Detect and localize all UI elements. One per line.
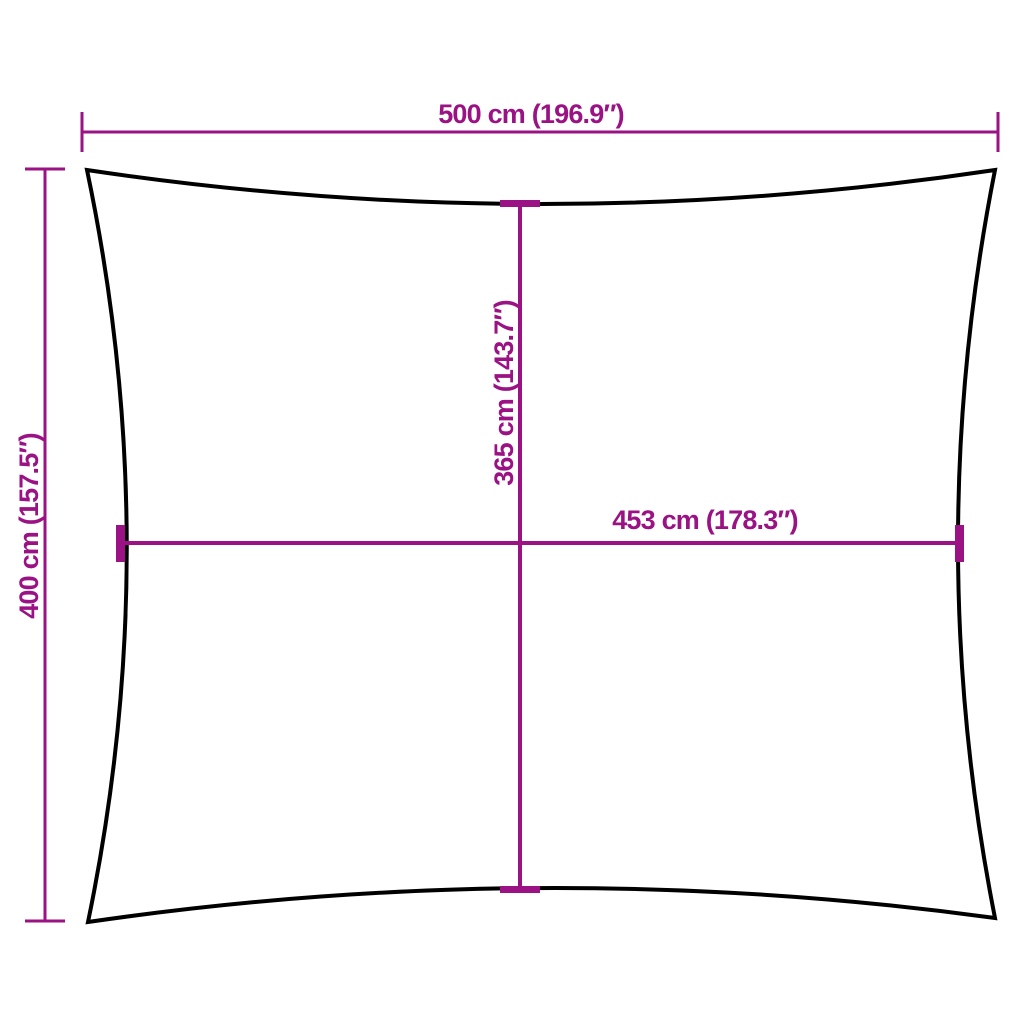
overall-height-label: 400 cm (157.5″) xyxy=(14,433,44,619)
overall-width-dimension: 500 cm (196.9″) xyxy=(82,99,998,152)
inner-height-dimension: 365 cm (143.7″) xyxy=(489,200,540,893)
dimension-diagram: 500 cm (196.9″) 400 cm (157.5″) 365 cm (… xyxy=(0,0,1024,1024)
inner-height-bottom-anchor xyxy=(500,886,540,893)
inner-width-left-anchor xyxy=(116,525,125,562)
inner-width-dimension: 453 cm (178.3″) xyxy=(116,505,964,562)
overall-height-dimension: 400 cm (157.5″) xyxy=(14,169,65,921)
inner-height-top-anchor xyxy=(500,200,540,207)
inner-width-label: 453 cm (178.3″) xyxy=(612,505,798,535)
shade-sail-outline xyxy=(87,170,995,922)
overall-width-label: 500 cm (196.9″) xyxy=(438,99,624,129)
inner-height-label: 365 cm (143.7″) xyxy=(489,300,519,486)
dimension-diagram-canvas: 500 cm (196.9″) 400 cm (157.5″) 365 cm (… xyxy=(0,0,1024,1024)
inner-width-right-anchor xyxy=(955,525,964,562)
